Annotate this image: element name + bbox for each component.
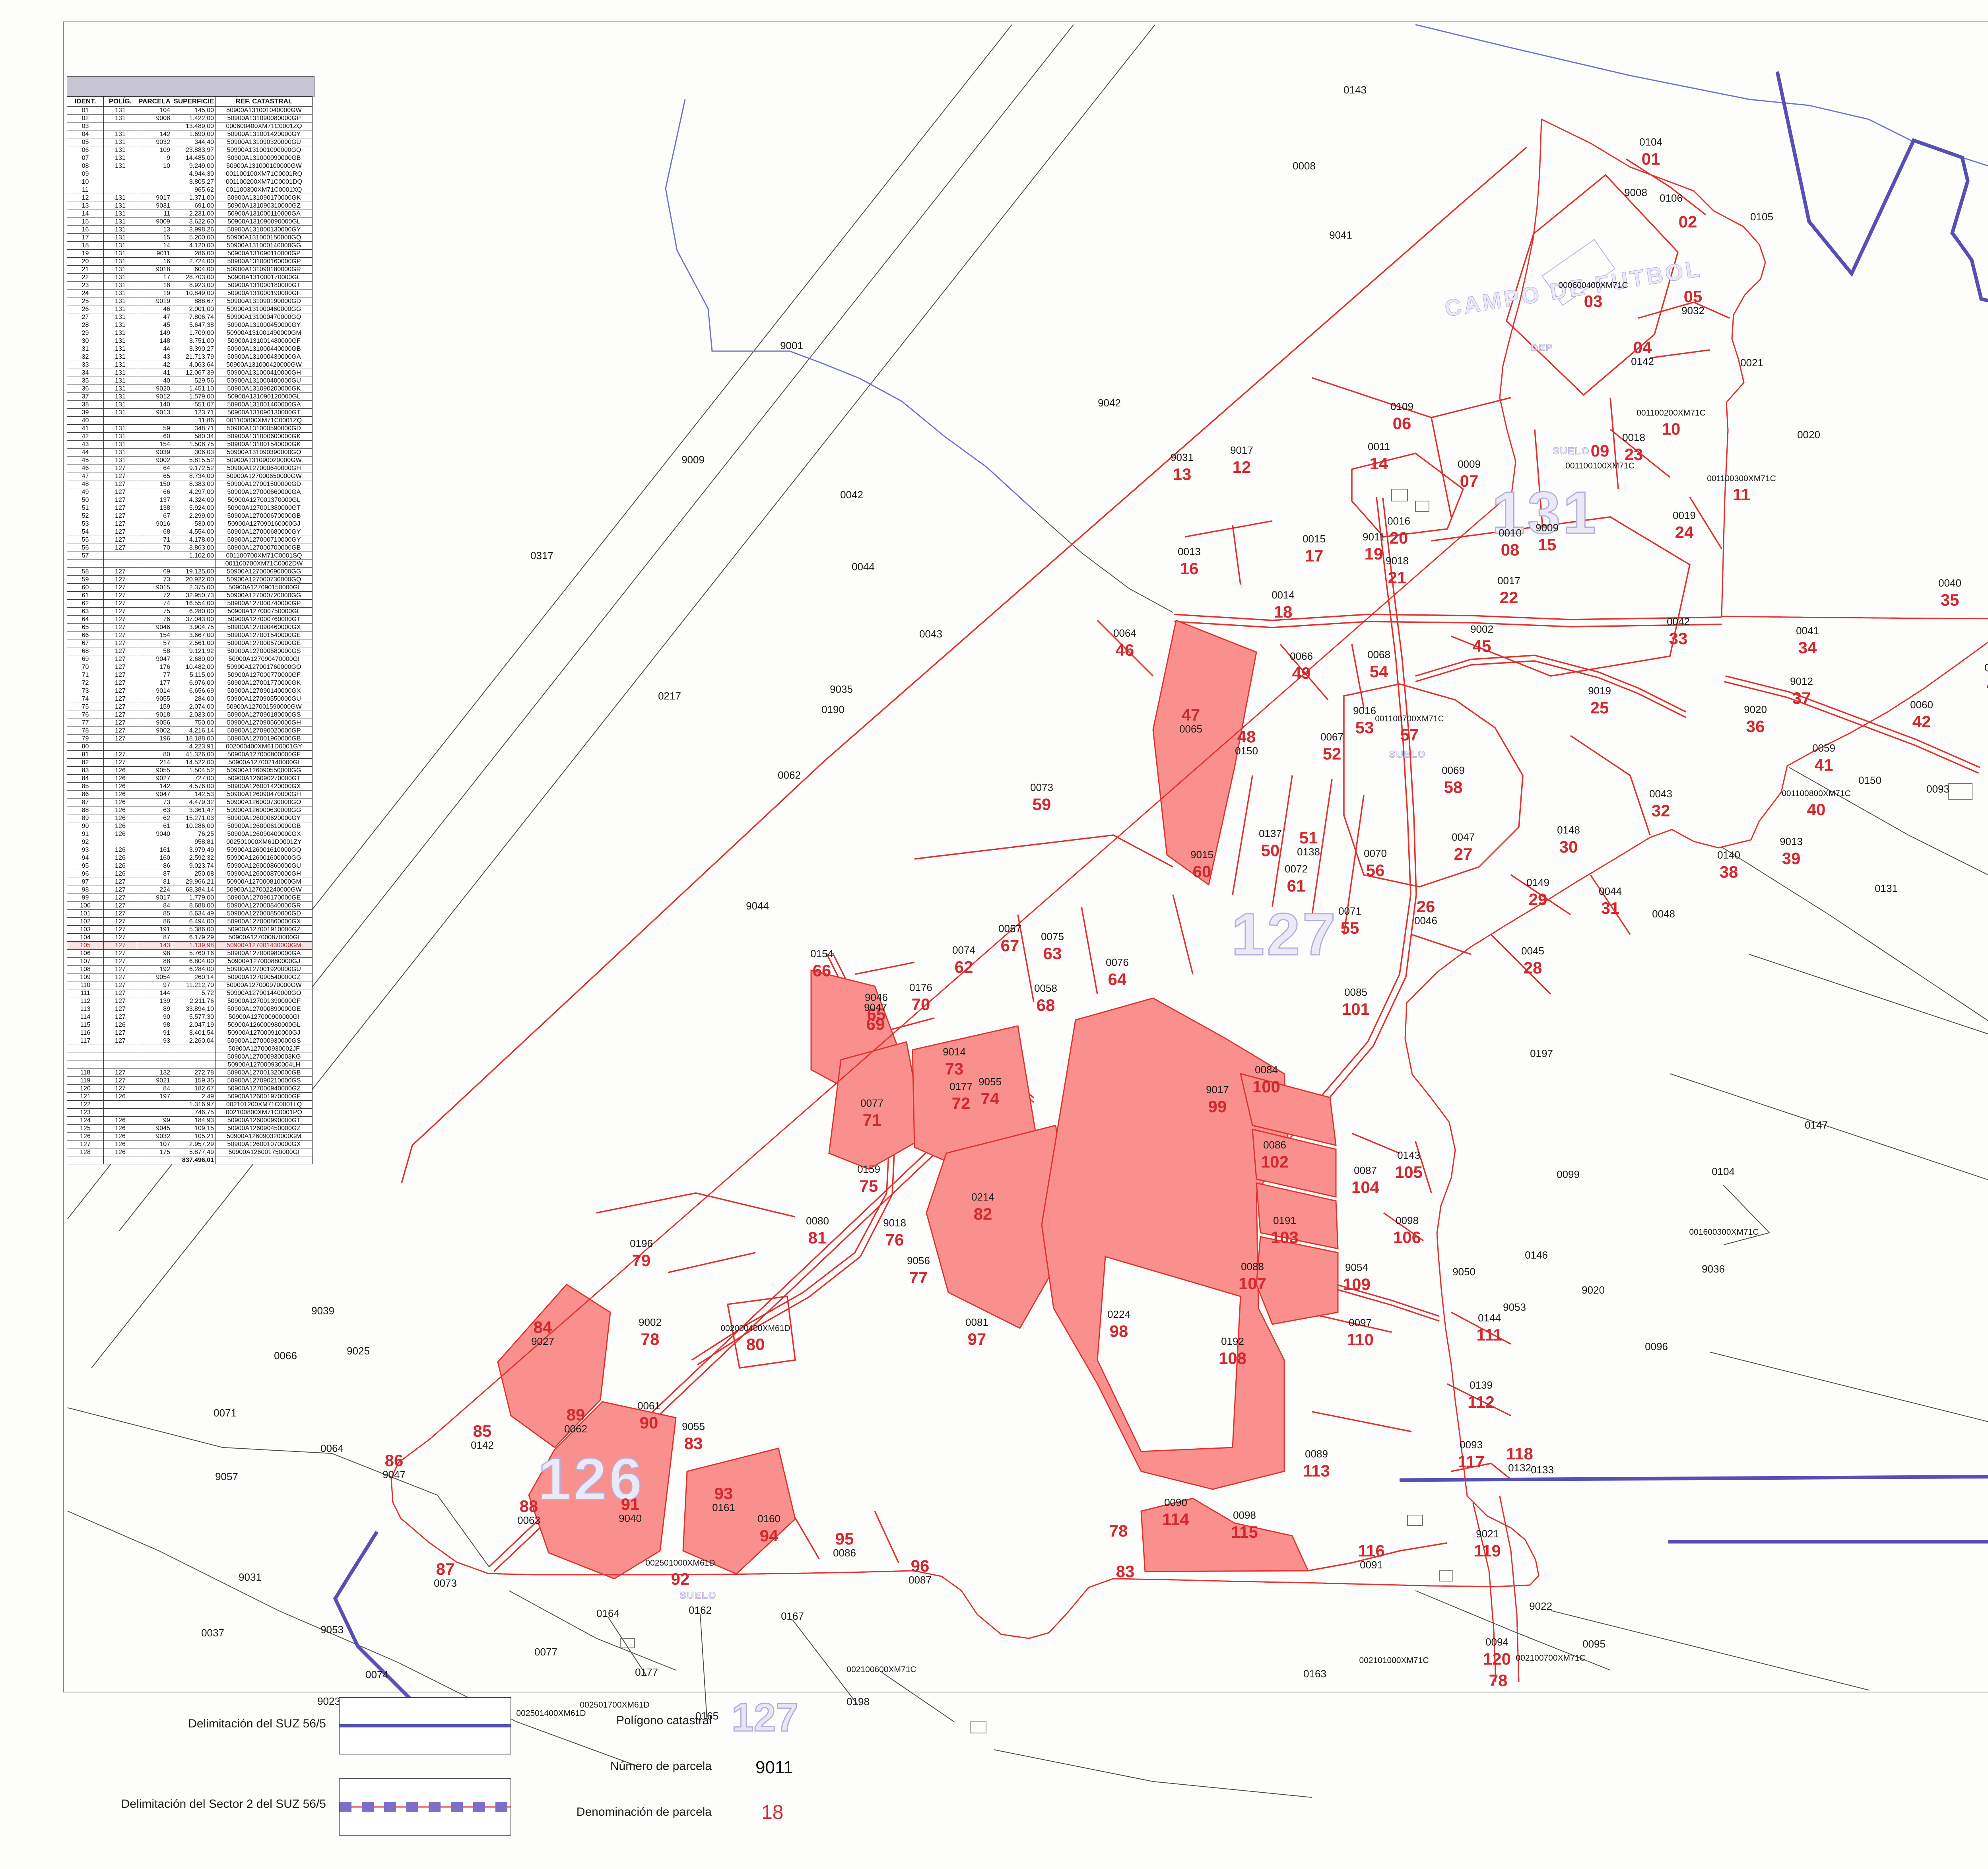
svg-text:9032: 9032 xyxy=(1681,305,1705,317)
table-row: 3713190121.579,0050900A131090120000GL xyxy=(67,393,313,401)
table-row: 9612687250,0850900A126000870000GH xyxy=(67,870,313,878)
code-label: 0071 xyxy=(214,1407,237,1419)
svg-text:107: 107 xyxy=(1239,1274,1266,1293)
code-label: 9009 xyxy=(681,454,705,466)
parcel-label: 007387 xyxy=(434,1560,457,1589)
table-row: 611277232.950,7350900A127000720000GG xyxy=(67,592,313,600)
svg-text:112: 112 xyxy=(1468,1393,1495,1411)
svg-text:0159: 0159 xyxy=(857,1163,880,1175)
parcel-label: 007771 xyxy=(860,1097,883,1129)
legend-denominacion-label: Denominación de parcela xyxy=(473,1805,712,1819)
legend-parcela-label: Número de parcela xyxy=(473,1760,712,1773)
parcel-label: 0192108 xyxy=(1219,1335,1246,1368)
code-label: 0177 xyxy=(635,1666,658,1678)
svg-text:38: 38 xyxy=(1720,863,1738,881)
svg-text:31: 31 xyxy=(1601,899,1620,917)
svg-text:94: 94 xyxy=(760,1526,779,1545)
col-polig: POLÍG. xyxy=(104,97,137,107)
table-row: 591277320.922,0050900A127000730000GQ xyxy=(67,576,313,584)
code-label: 0133 xyxy=(1531,1464,1554,1476)
svg-text:91: 91 xyxy=(621,1495,640,1513)
parcel-label: 014204 xyxy=(1631,338,1654,367)
parcel-label: 006190 xyxy=(637,1400,660,1432)
svg-text:9014: 9014 xyxy=(943,1046,966,1058)
svg-text:82: 82 xyxy=(974,1205,992,1223)
table-row: 95126869.023,7450900A126000860000GU xyxy=(67,862,313,870)
parcel-label: 0091116 xyxy=(1358,1541,1385,1571)
code-label: 0217 xyxy=(658,690,681,702)
col-ref: REF. CATASTRAL xyxy=(216,97,313,107)
parcel-label: 901473 xyxy=(943,1046,966,1078)
parcel-label: 0087104 xyxy=(1351,1164,1380,1197)
svg-text:63: 63 xyxy=(1043,944,1062,963)
svg-text:34: 34 xyxy=(1798,638,1817,657)
polygon-number-label: SUELO xyxy=(1389,749,1426,760)
svg-text:84: 84 xyxy=(534,1318,552,1337)
table-row: 52127672.299,0050900A127000670000GB xyxy=(67,512,313,520)
table-row: 16131133.998,2650900A131000130000GY xyxy=(67,226,313,234)
code-label: 0048 xyxy=(1652,908,1675,920)
table-row: 56127703.863,0050900A127000700000GB xyxy=(67,544,313,552)
table-row: 1111271445,7250900A127001440000GO xyxy=(67,989,313,997)
svg-text:002000400XM61D: 002000400XM61D xyxy=(720,1324,790,1333)
table-row: 891266215.271,0350900A126000620000GY xyxy=(67,814,313,822)
table-row: 33131424.063,6450900A131000420000GW xyxy=(67,361,313,369)
code-label: 9023 xyxy=(317,1695,340,1707)
parcel-label: 902036 xyxy=(1744,703,1767,736)
parcel-label: 78 xyxy=(1109,1521,1128,1540)
code-label: 0105 xyxy=(1750,211,1773,223)
svg-text:86: 86 xyxy=(385,1451,404,1470)
parcel-label: 006649 xyxy=(1290,650,1313,682)
svg-text:70: 70 xyxy=(912,995,930,1014)
svg-text:0094: 0094 xyxy=(1485,1636,1508,1648)
parcel-label: 001100200XM71C10 xyxy=(1637,408,1706,438)
svg-text:42: 42 xyxy=(1912,712,1931,731)
svg-text:39: 39 xyxy=(1782,849,1801,868)
table-row: 38131140551,0750900A131001400000GA xyxy=(67,401,313,409)
svg-text:0214: 0214 xyxy=(971,1191,994,1203)
svg-text:115: 115 xyxy=(1231,1523,1258,1541)
svg-text:0061: 0061 xyxy=(637,1400,660,1412)
svg-text:0073: 0073 xyxy=(434,1577,457,1589)
svg-text:0154: 0154 xyxy=(1984,662,1988,674)
table-row: 1191279021159,3550900A127090210000GS xyxy=(67,1077,313,1085)
parcel-label: 014929 xyxy=(1526,876,1549,909)
code-label: 0131 xyxy=(1875,882,1898,894)
parcel-label: 0093117 xyxy=(1458,1439,1485,1471)
table-row: 47127658.734,0050900A127000650000GW xyxy=(67,472,313,480)
parcel-label: 017772 xyxy=(949,1080,973,1113)
svg-text:71: 71 xyxy=(863,1111,881,1129)
svg-text:0016: 0016 xyxy=(1387,515,1410,527)
code-label: 0104 xyxy=(1712,1166,1735,1177)
parcel-label: 010401 xyxy=(1639,136,1662,168)
svg-text:73: 73 xyxy=(945,1059,964,1078)
table-row: 661271543.667,0050900A127001540000GE xyxy=(67,631,313,639)
svg-text:69: 69 xyxy=(866,1015,885,1034)
svg-text:0143: 0143 xyxy=(1397,1149,1420,1161)
parcel-label: 001418 xyxy=(1272,589,1295,621)
svg-text:0177: 0177 xyxy=(949,1080,973,1092)
parcel-label: 002501000XM61D92 xyxy=(645,1558,715,1588)
code-label: 0150 xyxy=(1858,774,1881,786)
svg-text:9002: 9002 xyxy=(639,1316,662,1328)
svg-text:0071: 0071 xyxy=(1338,905,1361,917)
col-parcela: PARCELA xyxy=(137,97,172,107)
parcel-label: 901560 xyxy=(1190,849,1213,881)
parcel-label: 015443 xyxy=(1984,662,1988,694)
code-label: 0020 xyxy=(1797,429,1820,441)
svg-text:108: 108 xyxy=(1219,1349,1246,1368)
parcel-label: 0086102 xyxy=(1261,1139,1289,1171)
svg-text:72: 72 xyxy=(952,1094,971,1113)
table-row: 8312690551.504,5250900A126090550000GG xyxy=(67,767,313,775)
parcel-label: 008081 xyxy=(806,1215,829,1247)
code-label: 9044 xyxy=(746,900,769,912)
code-label: 0163 xyxy=(1303,1668,1326,1680)
table-row: 4513190025.815,5250900A131090020000GW xyxy=(67,457,313,464)
parcel-label: 006289 xyxy=(564,1405,587,1435)
svg-text:120: 120 xyxy=(1483,1649,1511,1668)
svg-text:0045: 0045 xyxy=(1521,945,1544,957)
table-row: 1031271915.386,0050900A127001910000GZ xyxy=(67,926,313,934)
code-label: 0008 xyxy=(1293,160,1316,172)
svg-text:9013: 9013 xyxy=(1780,835,1803,847)
parcel-label: 008695 xyxy=(833,1529,856,1559)
table-row: 041311421.690,0050900A131001420000GY xyxy=(67,130,313,138)
svg-text:0196: 0196 xyxy=(630,1238,653,1249)
parcel-label: 006854 xyxy=(1367,649,1390,681)
parcel-label: 004727 xyxy=(1452,831,1475,863)
table-row: 741279055284,0050900A127090550000GU xyxy=(67,695,313,703)
table-row: 1131278933.894,1050900A127000890000GE xyxy=(67,1005,313,1013)
svg-text:62: 62 xyxy=(955,958,973,976)
parcel-table: IDENT. POLÍG. PARCELA SUPERFICIE REF. CA… xyxy=(67,96,313,1164)
parcel-label: 015466 xyxy=(810,948,833,980)
parcel-label: 901712 xyxy=(1230,444,1253,476)
parcel-label: 001100300XM71C11 xyxy=(1707,474,1776,504)
svg-text:48: 48 xyxy=(1237,727,1256,746)
parcel-label: 0084100 xyxy=(1252,1064,1280,1096)
table-row: 6912790472.680,0050900A127090470000GI xyxy=(67,655,313,663)
parcel-label: 001924 xyxy=(1673,509,1696,542)
code-label: 0077 xyxy=(534,1646,557,1658)
svg-text:11: 11 xyxy=(1733,485,1750,504)
parcel-label: 83 xyxy=(1116,1562,1135,1581)
table-row: 1213190171.371,0050900A131090170000GK xyxy=(67,194,313,202)
svg-text:0080: 0080 xyxy=(806,1215,829,1227)
parcel-label: 017670 xyxy=(909,981,932,1014)
svg-text:9009: 9009 xyxy=(1536,522,1559,534)
table-row: 1121271392.211,7650900A127001390000GF xyxy=(67,997,313,1005)
table-row: 117127932.260,0450900A127000930000GS xyxy=(67,1037,313,1045)
svg-text:0065: 0065 xyxy=(1179,723,1202,735)
code-label: 9053 xyxy=(320,1624,344,1636)
svg-text:92: 92 xyxy=(671,1570,690,1588)
table-row: 241311910.849,0050900A131000190000GF xyxy=(67,289,313,297)
svg-text:0098: 0098 xyxy=(1233,1509,1256,1521)
table-row: 11965,62001100300XM71C0001XQ xyxy=(67,186,313,194)
svg-text:001100300XM71C: 001100300XM71C xyxy=(1707,474,1776,483)
svg-text:0069: 0069 xyxy=(1442,764,1465,776)
parcel-label: 904091 xyxy=(619,1495,642,1524)
parcel-label: 0098115 xyxy=(1231,1509,1258,1541)
svg-text:0137: 0137 xyxy=(1259,828,1282,839)
parcel-label: 013851 xyxy=(1297,828,1320,858)
table-row: 1271261072.957,2950900A126001070000GX xyxy=(67,1140,313,1148)
table-row: 621277416.554,0050900A127000740000GP xyxy=(67,600,313,608)
svg-text:29: 29 xyxy=(1529,890,1547,909)
parcel-label: 006958 xyxy=(1442,764,1465,797)
parcel-label: 007664 xyxy=(1106,956,1129,989)
code-label: 9041 xyxy=(1329,229,1352,241)
svg-text:000600400XM71C: 000600400XM71C xyxy=(1558,281,1628,290)
svg-text:0062: 0062 xyxy=(564,1423,587,1435)
parcel-label: 0090114 xyxy=(1162,1496,1189,1529)
parcel-label: 0089113 xyxy=(1303,1448,1330,1480)
code-label: 002100700XM71C xyxy=(1516,1653,1585,1663)
table-row: 9812722468.384,1450900A127002240000GW xyxy=(67,886,313,894)
table-row: 511271385.924,0050900A127001380000GT xyxy=(67,504,313,512)
table-row: 8212721414.522,0050900A127002140000GI xyxy=(67,759,313,767)
svg-text:0066: 0066 xyxy=(1290,650,1313,662)
svg-text:0077: 0077 xyxy=(860,1097,883,1109)
table-row: 6012790152.375,0050900A127090150000GI xyxy=(67,584,313,592)
code-label: 002100600XM71C xyxy=(846,1665,916,1674)
parcel-label: 901821 xyxy=(1386,555,1409,587)
table-row: 67127572.561,0050900A127000570000GE xyxy=(67,639,313,647)
svg-text:40: 40 xyxy=(1807,800,1826,819)
table-row: 1091279054260,1450900A127090540000GZ xyxy=(67,973,313,981)
parcel-label: 006547 xyxy=(1179,705,1202,735)
col-ident: IDENT. xyxy=(67,97,104,107)
code-label: 0198 xyxy=(846,1696,870,1708)
table-row: 123746,75002100800XM71C0001PQ xyxy=(67,1109,313,1117)
svg-text:22: 22 xyxy=(1500,588,1518,607)
svg-text:17: 17 xyxy=(1305,546,1324,565)
svg-text:0011: 0011 xyxy=(1368,441,1390,453)
svg-text:0088: 0088 xyxy=(1241,1261,1264,1273)
svg-text:0089: 0089 xyxy=(1305,1448,1328,1460)
svg-text:0142: 0142 xyxy=(471,1439,494,1451)
table-row: 131319031691,0050900A131090310000GZ xyxy=(67,202,313,210)
table-row: 771279056750,0050900A127090560000GH xyxy=(67,719,313,727)
svg-text:36: 36 xyxy=(1746,717,1765,736)
svg-text:9056: 9056 xyxy=(907,1255,930,1267)
table-row: 31131443.390,2750900A131000440000GB xyxy=(67,345,313,353)
svg-text:9054: 9054 xyxy=(1345,1261,1368,1273)
table-row: 3613190201.451,1050900A131090200000GK xyxy=(67,385,313,393)
code-label: 0021 xyxy=(1740,357,1763,369)
svg-text:81: 81 xyxy=(808,1228,827,1247)
parcel-label: 007056 xyxy=(1364,847,1387,880)
svg-text:90: 90 xyxy=(640,1413,658,1432)
svg-text:0044: 0044 xyxy=(1599,885,1622,897)
svg-text:9002: 9002 xyxy=(1470,623,1493,635)
parcel-label: 004035 xyxy=(1938,577,1961,609)
table-row: 115126982.047,1950900A126000980000GL xyxy=(67,1021,313,1029)
svg-text:002501000XM61D: 002501000XM61D xyxy=(645,1558,715,1568)
svg-text:04: 04 xyxy=(1633,338,1652,357)
code-label: 9001 xyxy=(780,340,803,352)
svg-text:0081: 0081 xyxy=(965,1316,988,1328)
table-row: 46127649.172,5250900A127000640000GH xyxy=(67,464,313,472)
table-row: 102127866.494,0050900A127000860000GX xyxy=(67,918,313,926)
parcel-label: 905677 xyxy=(907,1255,930,1287)
code-label: 9031 xyxy=(239,1571,262,1583)
table-row: 341314112.067,3950900A131000410000GH xyxy=(67,369,313,377)
svg-text:0058: 0058 xyxy=(1034,982,1057,994)
svg-text:113: 113 xyxy=(1303,1461,1330,1480)
table-row: 941261602.592,3250900A126001600000GG xyxy=(67,854,313,862)
table-row: 12012784182,6750900A127000940000GZ xyxy=(67,1085,313,1093)
table-row: 92958,81002501000XM61D0001ZY xyxy=(67,838,313,846)
parcel-label: 021482 xyxy=(971,1191,994,1223)
svg-text:0043: 0043 xyxy=(1649,788,1672,800)
table-row: 861269047142,5350900A126090470000GH xyxy=(67,791,313,799)
svg-text:16: 16 xyxy=(1180,559,1199,578)
table-row: 7612790182.033,0050900A127090180000GS xyxy=(67,711,313,719)
svg-text:57: 57 xyxy=(1400,725,1419,744)
svg-text:0138: 0138 xyxy=(1297,846,1320,858)
code-label: 0096 xyxy=(1645,1341,1668,1352)
svg-text:0064: 0064 xyxy=(1113,627,1136,639)
svg-text:106: 106 xyxy=(1393,1228,1421,1247)
parcel-table-wrap: IDENT. POLÍG. PARCELA SUPERFICIE REF. CA… xyxy=(67,96,313,1164)
parcel-label: 001517 xyxy=(1303,533,1326,565)
polygon-number-label: SUELO xyxy=(680,1590,717,1601)
parcel-label: 901237 xyxy=(1790,675,1813,707)
svg-text:64: 64 xyxy=(1108,970,1127,989)
parcel-label: 004332 xyxy=(1649,788,1672,820)
svg-text:47: 47 xyxy=(1182,705,1200,724)
table-row: 23131188.923,0050900A131000180000GT xyxy=(67,282,313,289)
parcel-label: 015975 xyxy=(857,1163,880,1195)
code-label: 0042 xyxy=(840,489,863,501)
table-row: 26131462.001,0050900A131000460000GG xyxy=(67,305,313,313)
code-label: 0037 xyxy=(201,1627,224,1639)
svg-text:99: 99 xyxy=(1208,1097,1227,1116)
parcel-label: 022498 xyxy=(1107,1308,1130,1341)
svg-text:15: 15 xyxy=(1538,535,1557,554)
code-label: 0099 xyxy=(1557,1168,1580,1180)
table-row: 7312790146.656,6950900A127090140000GX xyxy=(67,687,313,695)
parcel-label: 007261 xyxy=(1285,863,1308,895)
table-row: 118127132272,7850900A127001320000GB xyxy=(67,1069,313,1077)
table-row: 116127913.401,5450900A127000910000GJ xyxy=(67,1029,313,1037)
table-row: 1513190093.622,6050900A131090090000GL xyxy=(67,218,313,226)
svg-text:0086: 0086 xyxy=(833,1547,856,1559)
legend-parcela-sample: 9011 xyxy=(755,1758,793,1778)
svg-text:0224: 0224 xyxy=(1107,1308,1130,1320)
table-row: 6512790463.904,7550900A127090460000GX xyxy=(67,624,313,631)
svg-text:101: 101 xyxy=(1342,1000,1370,1018)
table-row: 531279016530,0050900A127090160000GJ xyxy=(67,520,313,528)
svg-text:9016: 9016 xyxy=(1353,705,1376,717)
svg-text:78: 78 xyxy=(1489,1671,1508,1690)
parcel-label: 904786 xyxy=(382,1451,406,1480)
svg-text:9019: 9019 xyxy=(1588,685,1611,697)
svg-text:104: 104 xyxy=(1351,1178,1380,1197)
table-row: 1221.316,97002101200XM71C0001LQ xyxy=(67,1101,313,1109)
parcel-label: 008197 xyxy=(965,1316,988,1348)
code-label: 0147 xyxy=(1805,1119,1828,1131)
parcel-label: 0098106 xyxy=(1393,1214,1421,1247)
table-row: 114127905.577,3050900A127000900000GI xyxy=(67,1013,313,1021)
svg-text:0160: 0160 xyxy=(757,1513,780,1525)
svg-text:43: 43 xyxy=(1987,675,1988,694)
table-row: 1081271926.284,0050900A127001920000GU xyxy=(67,966,313,973)
svg-text:14: 14 xyxy=(1370,454,1388,473)
code-label: 9036 xyxy=(1702,1263,1725,1275)
table-row: 50900A127000930003KG xyxy=(67,1053,313,1061)
parcel-label: 006042 xyxy=(1910,699,1933,731)
blue-lines xyxy=(666,25,1988,510)
svg-text:110: 110 xyxy=(1347,1330,1374,1349)
svg-text:0076: 0076 xyxy=(1106,956,1129,968)
table-row: 4213160580,3450900A131000600000GK xyxy=(67,433,313,441)
svg-text:10: 10 xyxy=(1662,420,1681,438)
svg-text:118: 118 xyxy=(1506,1444,1533,1463)
code-label: 0317 xyxy=(530,550,553,561)
svg-text:0047: 0047 xyxy=(1452,831,1475,843)
table-row: 106127985.760,1650900A127000980000GA xyxy=(67,950,313,958)
svg-text:88: 88 xyxy=(520,1497,538,1515)
svg-text:105: 105 xyxy=(1395,1163,1423,1181)
svg-text:0087: 0087 xyxy=(909,1574,932,1586)
code-label: 0146 xyxy=(1525,1249,1548,1261)
parcel-label: 903205 xyxy=(1681,287,1705,317)
parcel-label: 78 xyxy=(1489,1671,1508,1690)
svg-text:0098: 0098 xyxy=(1396,1214,1419,1226)
parcel-label: 902784 xyxy=(531,1318,554,1347)
svg-text:001100800XM71C: 001100800XM71C xyxy=(1782,789,1851,798)
svg-text:01: 01 xyxy=(1642,150,1660,168)
svg-text:0009: 0009 xyxy=(1458,458,1481,470)
svg-text:0060: 0060 xyxy=(1910,699,1933,711)
svg-text:9012: 9012 xyxy=(1790,675,1813,687)
parcel-label: 0191103 xyxy=(1271,1214,1299,1247)
svg-text:85: 85 xyxy=(473,1422,492,1440)
parcel-label: 001114 xyxy=(1368,441,1390,473)
svg-text:9055: 9055 xyxy=(682,1420,705,1432)
svg-text:26: 26 xyxy=(1417,897,1435,916)
svg-text:98: 98 xyxy=(1110,1322,1128,1341)
svg-text:20: 20 xyxy=(1390,528,1408,547)
svg-text:08: 08 xyxy=(1501,540,1520,559)
code-label: 0197 xyxy=(1530,1047,1553,1059)
parcel-label: 016094 xyxy=(757,1513,780,1545)
parcel-label: 900915 xyxy=(1536,522,1559,554)
svg-text:02: 02 xyxy=(1679,212,1697,231)
legend-item-suz: Delimitación del SUZ 56/5 xyxy=(48,1717,326,1731)
table-row: 7912719618.188,0050900A127001960000GB xyxy=(67,735,313,743)
svg-text:0040: 0040 xyxy=(1938,577,1961,589)
svg-text:0084: 0084 xyxy=(1255,1064,1278,1076)
table-row: 211319018604,0050900A131090180000GR xyxy=(67,266,313,274)
svg-text:0109: 0109 xyxy=(1390,400,1413,412)
legend-poligono-sample: 127 xyxy=(732,1695,798,1741)
svg-text:12: 12 xyxy=(1233,458,1251,476)
svg-text:33: 33 xyxy=(1669,629,1688,648)
parcel-label: 007155 xyxy=(1338,905,1361,937)
table-row: 1051271431.139,9850900A127001430000GM xyxy=(67,942,313,950)
parcel-label: 005941 xyxy=(1812,742,1835,774)
parcel-label: 016193 xyxy=(712,1484,735,1513)
parcel-label: 900245 xyxy=(1470,623,1493,655)
parcel-label: 901799 xyxy=(1206,1084,1229,1116)
